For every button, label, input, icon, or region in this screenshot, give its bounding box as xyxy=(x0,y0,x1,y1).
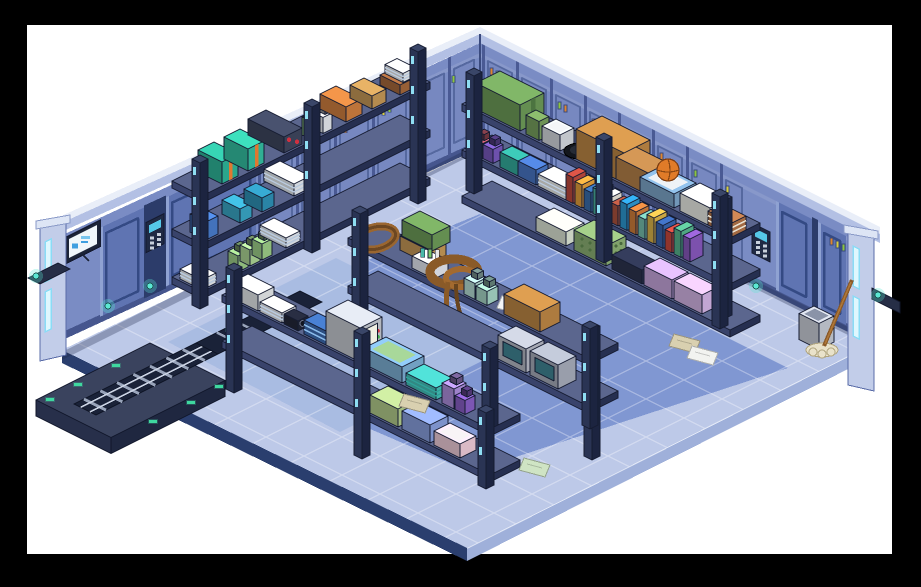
shelf-post xyxy=(226,263,242,393)
right-door-leaf-1[interactable] xyxy=(776,201,812,308)
room-scene xyxy=(0,0,921,587)
game-viewport xyxy=(0,0,921,587)
left-wall-end-pillar xyxy=(36,215,70,361)
shelf-post xyxy=(478,405,494,489)
shelf-post xyxy=(410,44,426,204)
right-wall-end-pillar xyxy=(844,225,878,391)
shelf-post xyxy=(712,189,728,329)
shelf-post xyxy=(466,68,482,194)
shelf-post xyxy=(582,321,598,429)
basketball[interactable] xyxy=(657,159,679,181)
shelf-post xyxy=(354,327,370,459)
shelf-post xyxy=(596,133,612,263)
shelf-post xyxy=(304,99,320,253)
shelf-post xyxy=(192,155,208,309)
